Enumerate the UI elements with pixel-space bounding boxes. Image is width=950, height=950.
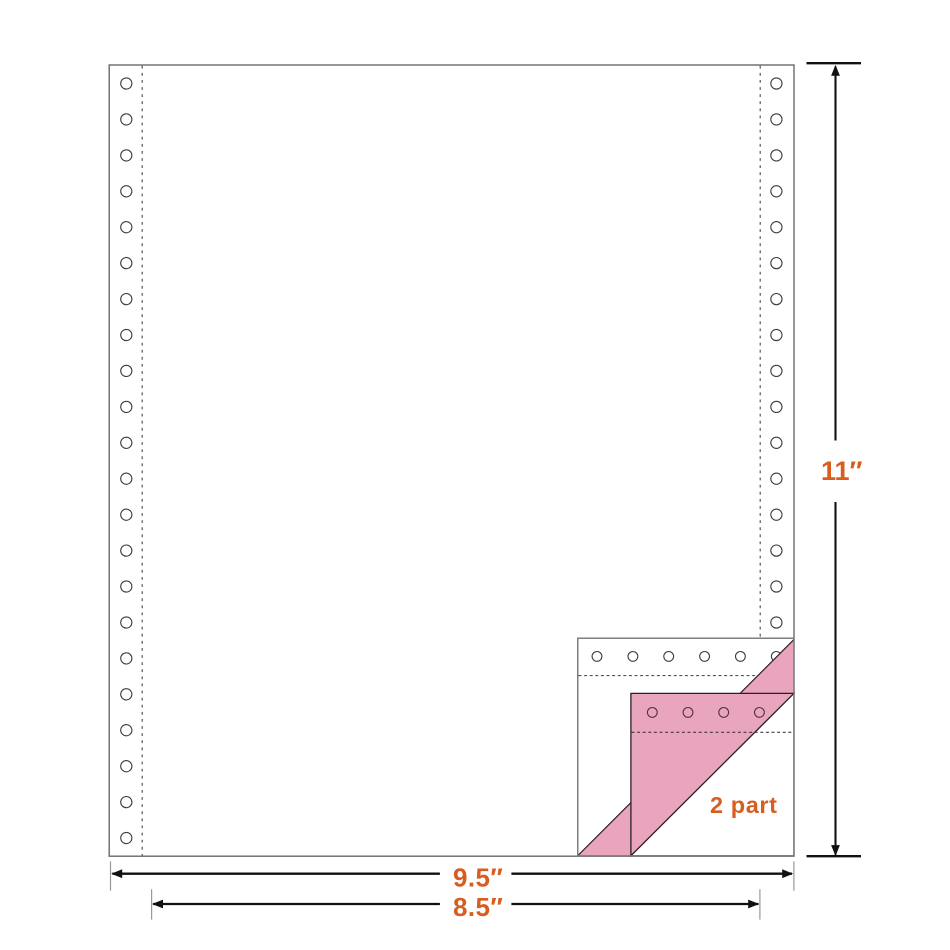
svg-text:9.5″: 9.5″ bbox=[453, 862, 503, 892]
svg-text:8.5″: 8.5″ bbox=[453, 892, 503, 922]
svg-text:11″: 11″ bbox=[821, 456, 863, 486]
svg-text:2 part: 2 part bbox=[710, 792, 778, 818]
